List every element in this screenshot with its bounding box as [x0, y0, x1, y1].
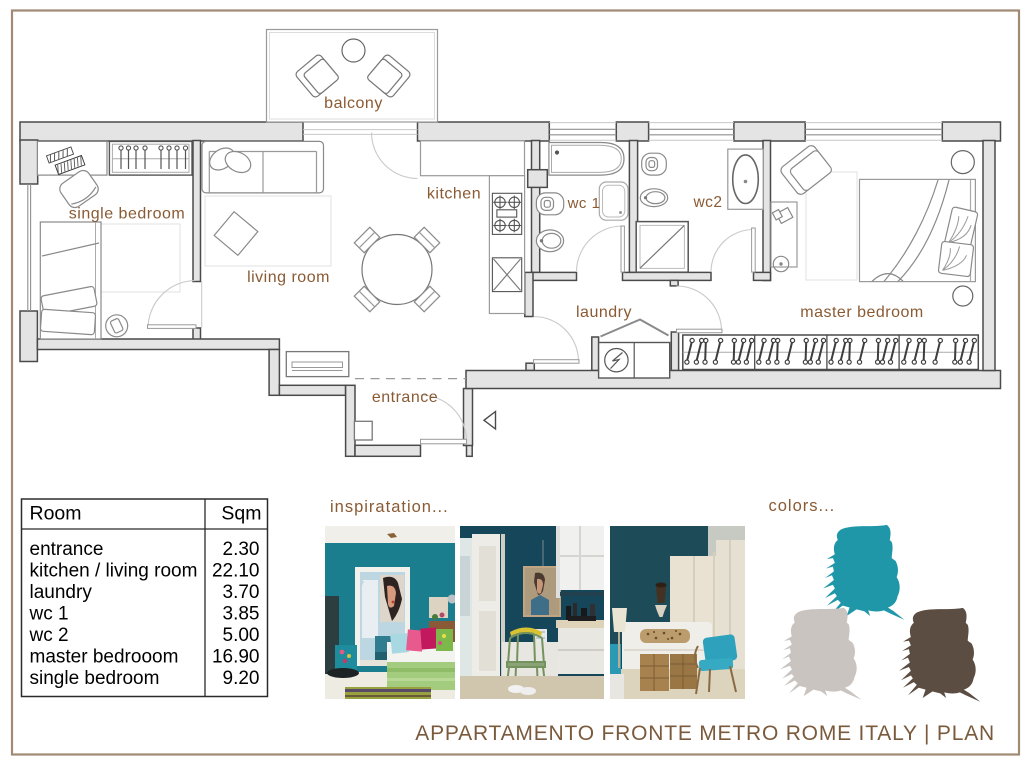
svg-text:entrance: entrance — [30, 539, 104, 560]
svg-text:Sqm: Sqm — [221, 503, 261, 525]
svg-text:single bedroom: single bedroom — [69, 206, 185, 223]
svg-text:Room: Room — [30, 503, 82, 525]
svg-text:22.10: 22.10 — [212, 561, 260, 582]
svg-text:3.85: 3.85 — [223, 604, 260, 625]
svg-text:laundry: laundry — [576, 304, 632, 321]
svg-text:2.30: 2.30 — [223, 539, 260, 560]
svg-text:wc2: wc2 — [692, 194, 722, 211]
svg-text:wc 1: wc 1 — [567, 195, 601, 212]
svg-text:master bedrooom: master bedrooom — [30, 647, 179, 668]
svg-text:balcony: balcony — [324, 95, 383, 112]
svg-text:laundry: laundry — [30, 582, 93, 603]
svg-text:inspiratation...: inspiratation... — [330, 498, 449, 516]
svg-text:9.20: 9.20 — [223, 668, 260, 689]
svg-text:master bedroom: master bedroom — [800, 304, 924, 321]
svg-text:colors...: colors... — [769, 497, 836, 515]
svg-text:wc 2: wc 2 — [29, 625, 69, 646]
svg-text:living room: living room — [247, 269, 330, 286]
svg-text:5.00: 5.00 — [223, 625, 260, 646]
svg-text:kitchen / living room: kitchen / living room — [30, 561, 198, 582]
svg-text:wc 1: wc 1 — [29, 604, 69, 625]
svg-text:3.70: 3.70 — [223, 582, 260, 603]
svg-text:16.90: 16.90 — [212, 647, 260, 668]
svg-text:APPARTAMENTO FRONTE METRO ROME: APPARTAMENTO FRONTE METRO ROME ITALY | P… — [415, 722, 995, 745]
svg-text:entrance: entrance — [372, 389, 438, 406]
svg-text:kitchen: kitchen — [427, 186, 481, 203]
svg-text:single bedroom: single bedroom — [30, 668, 160, 689]
